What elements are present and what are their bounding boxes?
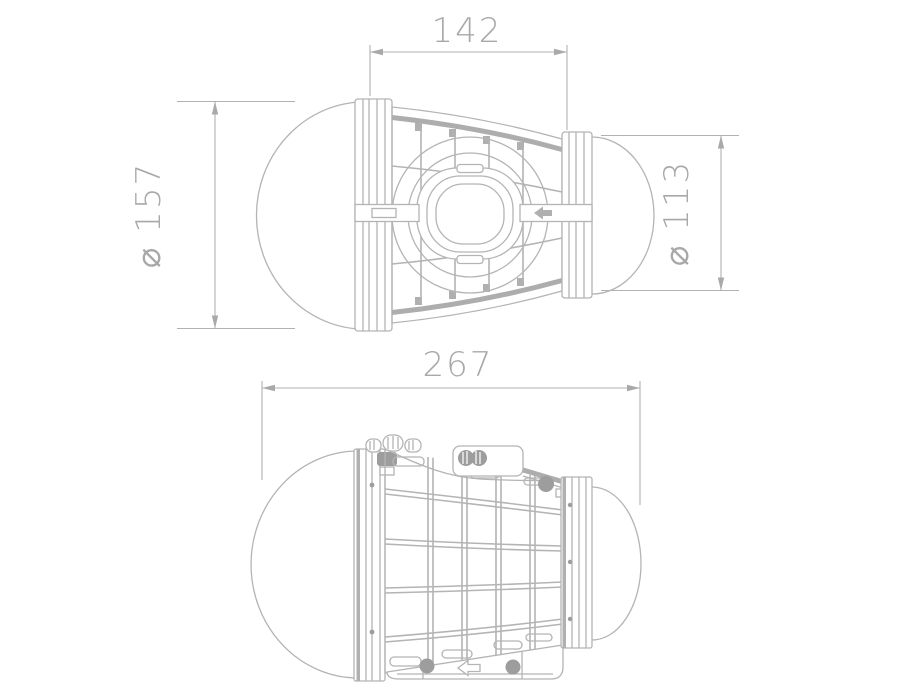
screw-head	[420, 659, 435, 674]
drawing-canvas: 142 ⌀ 157 ⌀ 113 267	[0, 0, 900, 700]
vent-slot	[494, 641, 522, 649]
dim-cage-length: 142	[370, 11, 567, 130]
cage-grid-columns	[428, 457, 535, 666]
window-inner-ring	[436, 184, 504, 244]
small-dome	[592, 137, 654, 294]
clamp-foot	[380, 467, 394, 475]
dim-small-dome-diameter: ⌀ 113	[601, 136, 739, 291]
arrowhead-up-icon	[718, 136, 724, 149]
dim-label-overall-length: 267	[423, 345, 494, 385]
ring-bar	[357, 449, 361, 681]
arrowhead-down-icon	[212, 316, 218, 329]
pivot-dot	[370, 483, 375, 488]
rear-ring	[561, 477, 592, 648]
window-clip	[457, 165, 483, 173]
dim-large-dome-diameter: ⌀ 157	[129, 102, 295, 329]
dim-lines	[177, 102, 295, 329]
small-dome	[592, 487, 641, 640]
dim-label-large-diameter: ⌀ 157	[129, 162, 169, 268]
arrowhead-right-icon	[554, 49, 567, 55]
cage-grid-rows	[385, 489, 563, 642]
screw-head	[506, 660, 521, 675]
latch-tab	[453, 446, 523, 476]
plan-view	[251, 435, 641, 681]
window-clip	[457, 256, 483, 264]
pivot-dot	[568, 503, 572, 507]
oval-window	[417, 165, 523, 264]
front-ring	[354, 449, 385, 681]
mounting-plate	[387, 645, 563, 679]
pivot-dot	[370, 630, 375, 635]
dim-label-small-diameter: ⌀ 113	[657, 160, 697, 266]
pivot-dot	[568, 560, 572, 564]
basket-cage	[385, 449, 563, 673]
screw-head	[538, 476, 554, 492]
arrowhead-left-icon	[262, 385, 275, 391]
technical-drawing-page: 142 ⌀ 157 ⌀ 113 267	[0, 0, 900, 700]
arrowhead-down-icon	[718, 278, 724, 291]
large-dome	[251, 451, 358, 678]
knurled-screw	[471, 450, 487, 466]
ring-bar	[563, 477, 567, 648]
side-view	[256, 99, 654, 331]
rail-left	[355, 205, 419, 222]
large-dome	[256, 102, 359, 329]
arrowhead-up-icon	[212, 102, 218, 115]
dim-label-cage-length: 142	[432, 11, 503, 51]
arrowhead-right-icon	[627, 385, 640, 391]
arrowhead-left-icon	[370, 49, 383, 55]
pivot-dot	[568, 617, 572, 621]
vent-slot	[390, 657, 421, 666]
rail-right	[520, 205, 592, 222]
